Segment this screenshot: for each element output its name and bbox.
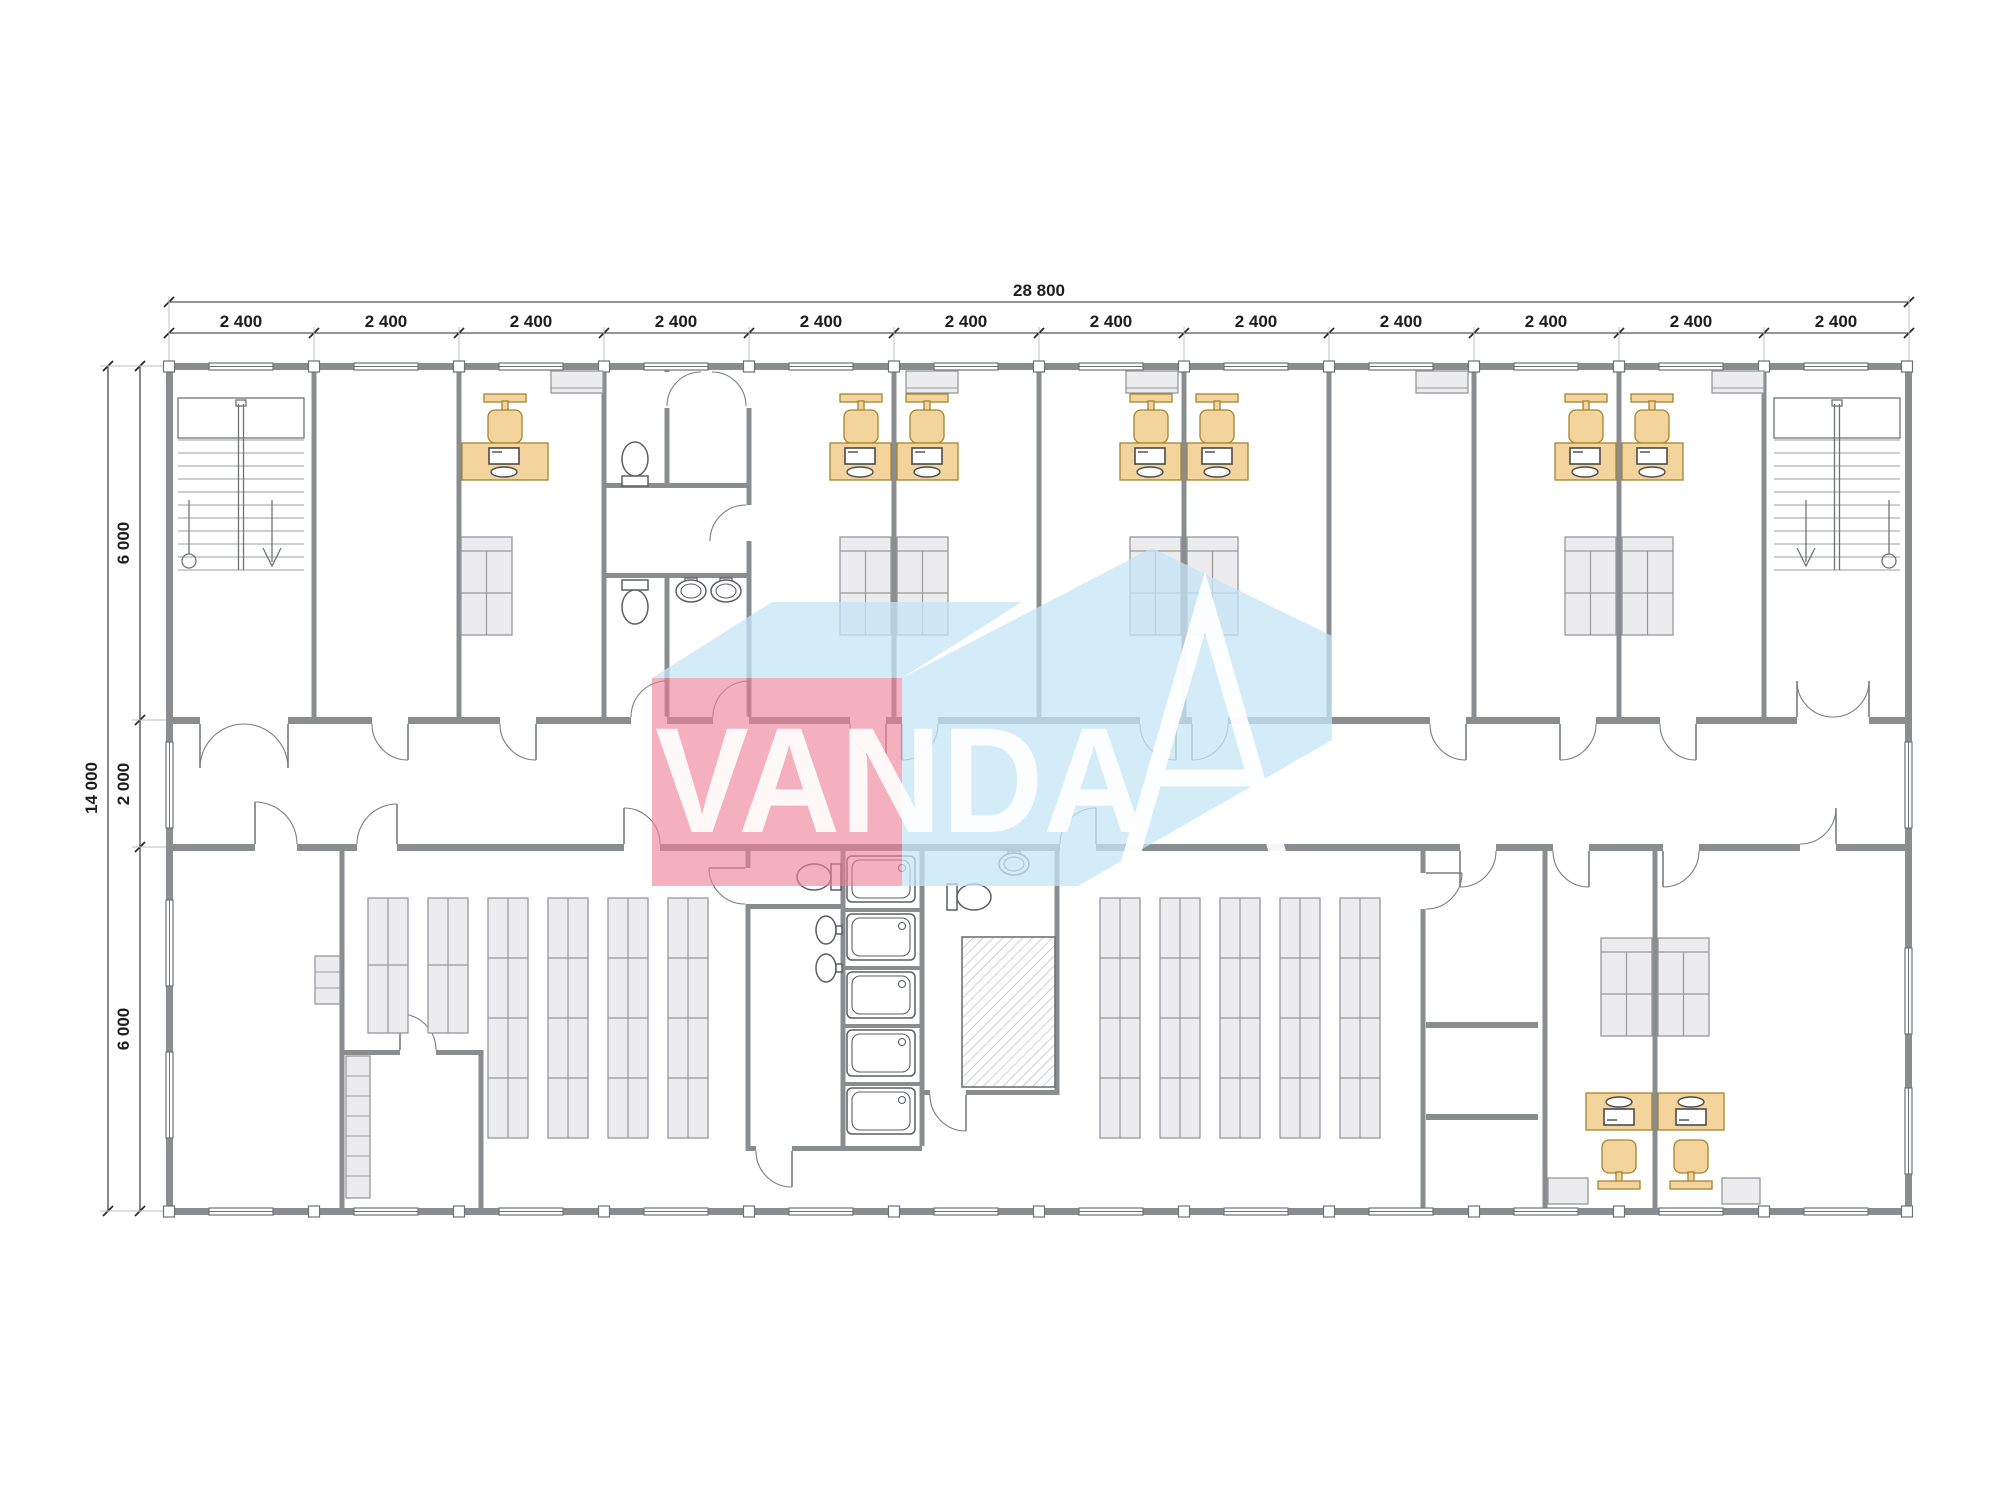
dim-module: 2 400	[1670, 312, 1713, 331]
dim-section: 2 000	[114, 763, 133, 806]
sink-icon	[816, 916, 842, 982]
dim-module: 2 400	[1235, 312, 1278, 331]
dim-module: 2 400	[1815, 312, 1858, 331]
dim-module: 2 400	[220, 312, 263, 331]
dim-module: 2 400	[1525, 312, 1568, 331]
dim-total-width: 28 800	[1013, 281, 1065, 300]
drying-room-icon	[962, 937, 1055, 1087]
dim-section: 6 000	[114, 522, 133, 565]
dim-module-labels: 2 400 2 400 2 400 2 400 2 400 2 400 2 40…	[220, 312, 1858, 331]
dim-module: 2 400	[365, 312, 408, 331]
watermark: VANDA	[652, 548, 1332, 886]
floor-plan-page: 28 800 2 400 2 400 2 400 2 400 2 400 2 4…	[0, 0, 2000, 1500]
dim-section: 6 000	[114, 1008, 133, 1051]
dim-module: 2 400	[945, 312, 988, 331]
shelf-unit-icon	[346, 1056, 370, 1198]
dim-module: 2 400	[1090, 312, 1133, 331]
dim-total-height: 14 000	[82, 762, 101, 814]
staircase-left	[178, 398, 304, 570]
watermark-text: VANDA	[655, 696, 1145, 864]
staircase-right	[1774, 398, 1900, 570]
dimension-top: 28 800 2 400 2 400 2 400 2 400 2 400 2 4…	[164, 281, 1914, 362]
extension-lines-top	[169, 296, 1909, 362]
extension-lines-left	[100, 366, 166, 1211]
dim-module: 2 400	[510, 312, 553, 331]
dimension-left: 14 000 6 000 2 000 6 000	[82, 361, 166, 1216]
floor-plan-canvas: 28 800 2 400 2 400 2 400 2 400 2 400 2 4…	[0, 0, 2000, 1500]
dim-module: 2 400	[1380, 312, 1423, 331]
dim-module: 2 400	[655, 312, 698, 331]
dim-module: 2 400	[800, 312, 843, 331]
